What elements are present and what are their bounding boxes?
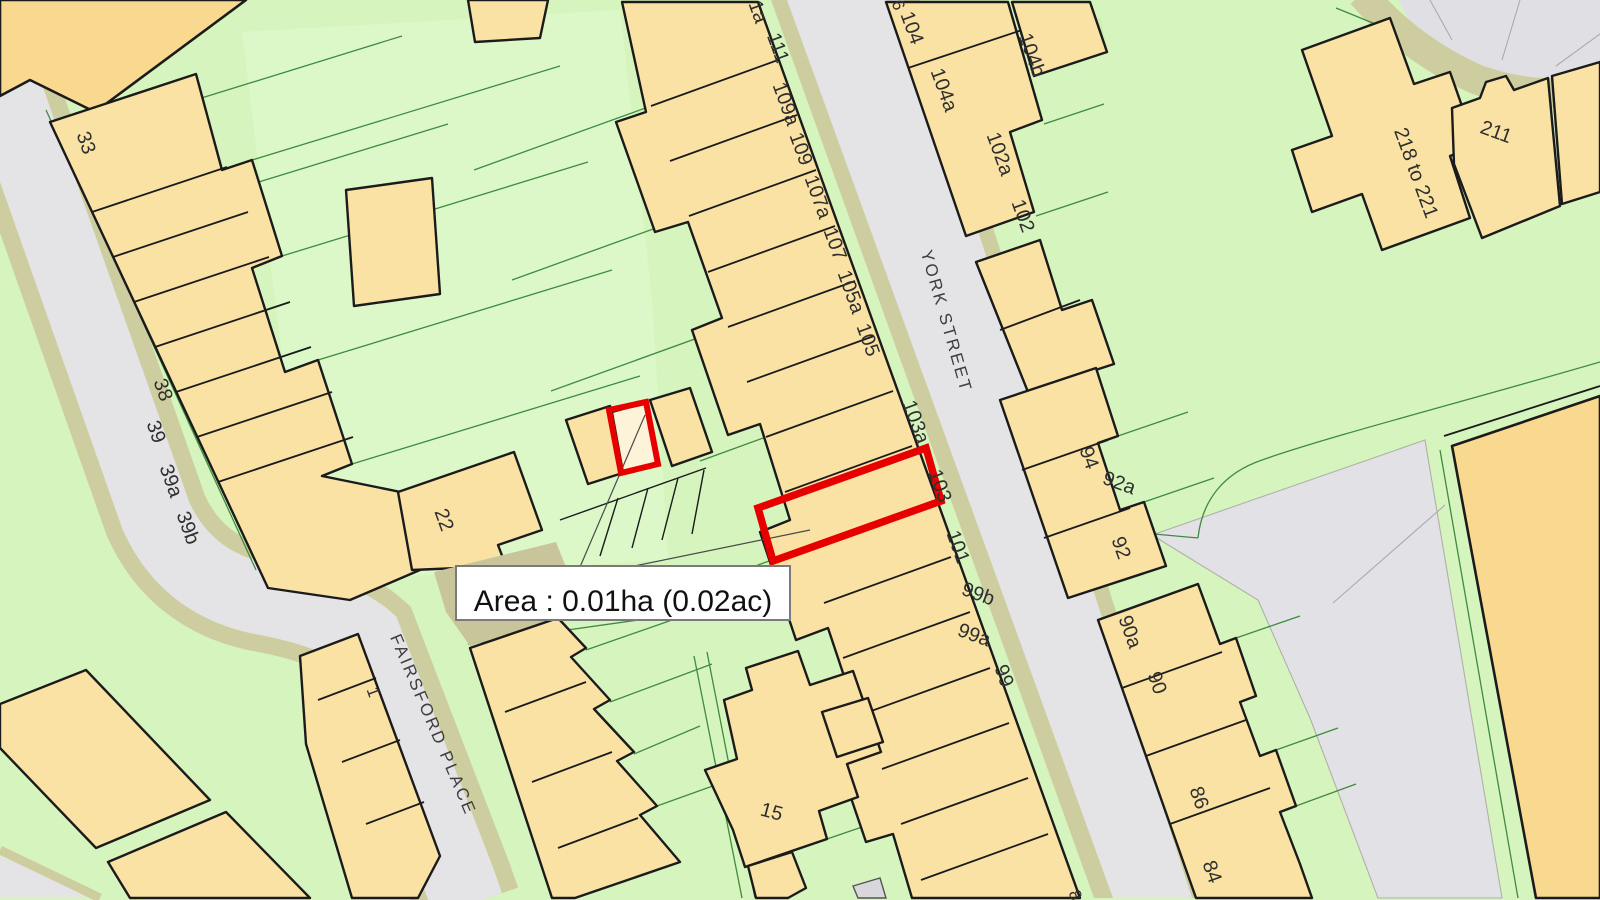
outbuilding — [346, 178, 440, 306]
area-annotation: Area : 0.01ha (0.02ac) — [456, 566, 790, 620]
map-canvas[interactable]: YORK STREET FAIRSFORD PLACE 33 38 39 39a… — [0, 0, 1600, 900]
building — [468, 0, 548, 42]
map-viewport[interactable]: YORK STREET FAIRSFORD PLACE 33 38 39 39a… — [0, 0, 1600, 900]
building — [1552, 62, 1600, 204]
area-value: Area : 0.01ha (0.02ac) — [474, 585, 773, 618]
